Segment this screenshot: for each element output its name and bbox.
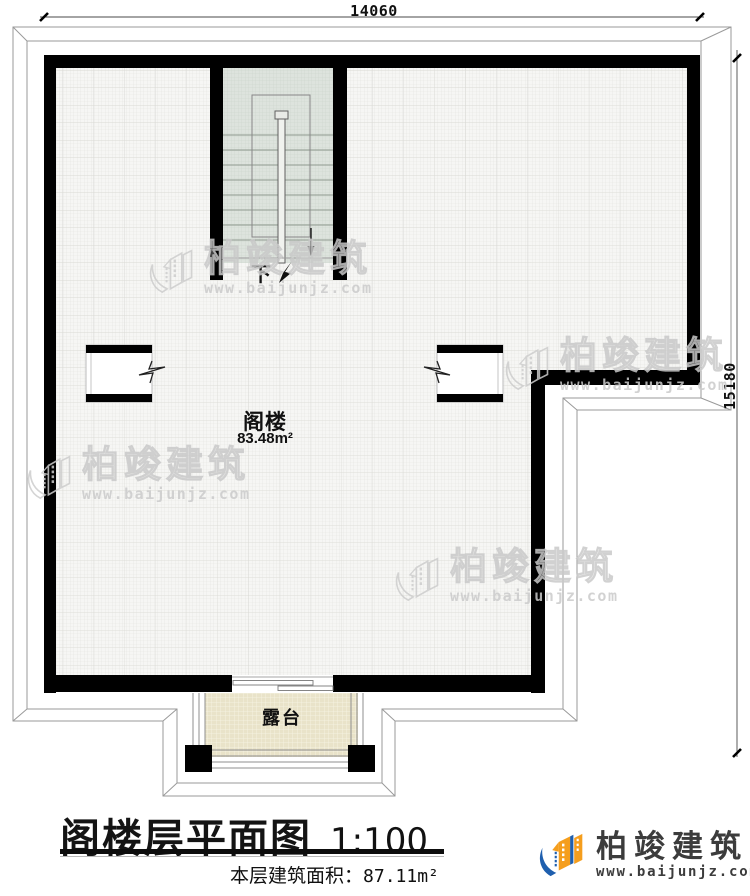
stair-newel (275, 111, 288, 119)
floor-area-label: 本层建筑面积： (230, 866, 363, 887)
terrace-sliding-door (232, 677, 333, 691)
company-logo-icon (536, 826, 588, 884)
terrace-post (348, 745, 375, 772)
floor-area-note: 本层建筑面积：87.11m² (230, 861, 439, 888)
terrace-label: 露台 (238, 704, 326, 730)
company-logo: 柏竣建筑 www.baijunjz.com (536, 826, 750, 884)
attic-floorplan-drawing (0, 0, 750, 810)
drawing-scale: 1:100 (330, 821, 428, 861)
stairwell (223, 68, 333, 283)
logo-url-text: www.baijunjz.com (596, 864, 750, 880)
room-area-label: 83.48m² (215, 430, 315, 447)
floor-area-value: 87.11m² (363, 866, 439, 887)
logo-brand-text: 柏竣建筑 (596, 830, 748, 864)
floorplan-sheet: 14060 15180 下 阁楼 83.48m² 露台 柏竣建筑 www.bai… (0, 0, 750, 896)
terrace-post (185, 745, 212, 772)
top-dimension-label: 14060 (334, 2, 414, 20)
title-underline-shadow (60, 856, 444, 857)
right-dimension-label: 15180 (721, 347, 737, 425)
stair-down-label: 下 (251, 258, 271, 287)
stair-handrail (278, 118, 285, 263)
title-underline (60, 849, 444, 854)
